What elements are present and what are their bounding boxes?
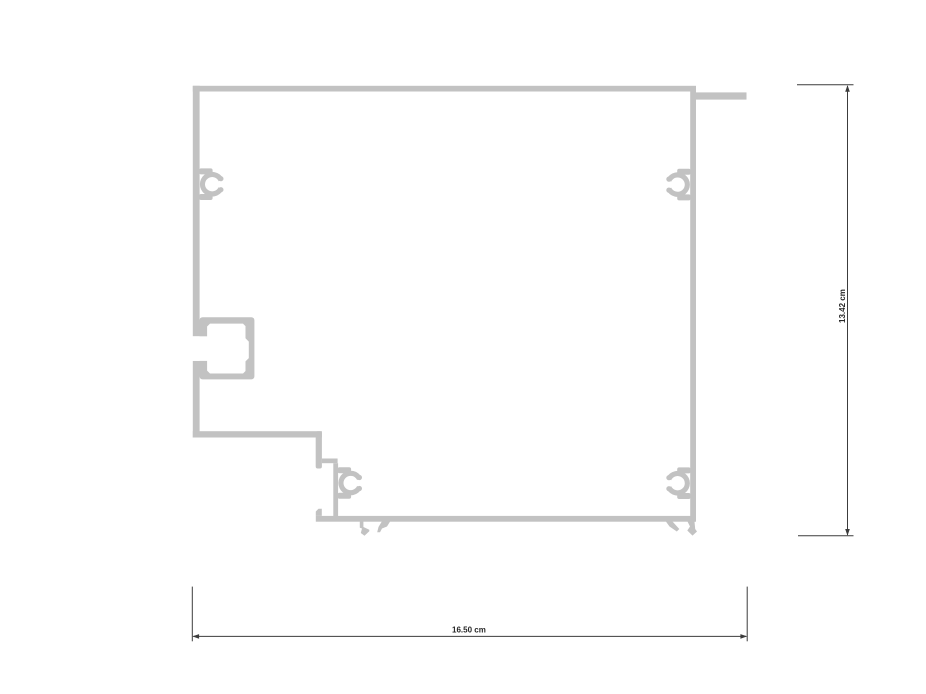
- svg-text:16.50 cm: 16.50 cm: [452, 626, 486, 635]
- svg-text:13.42 cm: 13.42 cm: [838, 289, 847, 323]
